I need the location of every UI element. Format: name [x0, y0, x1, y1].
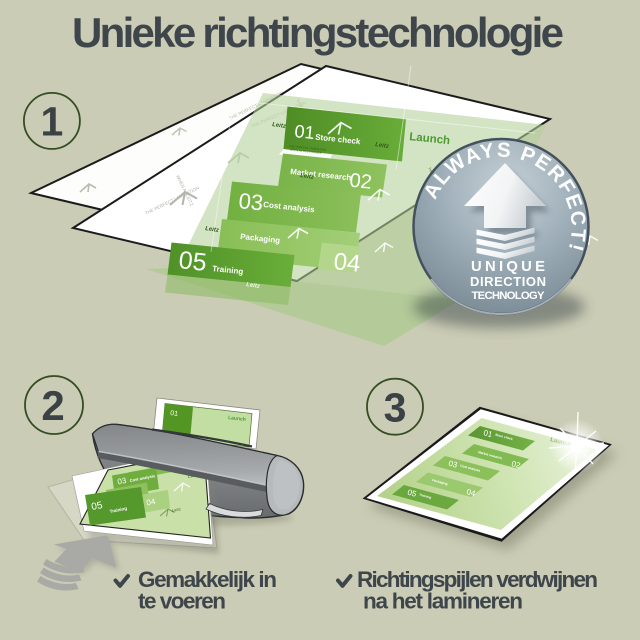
svg-text:2: 2: [41, 382, 64, 429]
svg-text:05: 05: [177, 246, 208, 277]
svg-text:na het lamineren: na het lamineren: [363, 589, 523, 614]
svg-text:01: 01: [170, 410, 179, 418]
svg-text:3: 3: [384, 385, 407, 431]
svg-text:01: 01: [294, 121, 316, 143]
svg-text:04: 04: [332, 248, 361, 278]
svg-text:Unieke richtingstechnologie: Unieke richtingstechnologie: [72, 9, 564, 56]
svg-text:02: 02: [348, 170, 372, 194]
svg-text:TECHNOLOGY: TECHNOLOGY: [472, 290, 545, 302]
svg-text:1: 1: [40, 99, 63, 145]
svg-text:te voeren: te voeren: [138, 589, 226, 614]
svg-text:DIRECTION: DIRECTION: [470, 274, 546, 289]
svg-text:03: 03: [237, 188, 264, 215]
